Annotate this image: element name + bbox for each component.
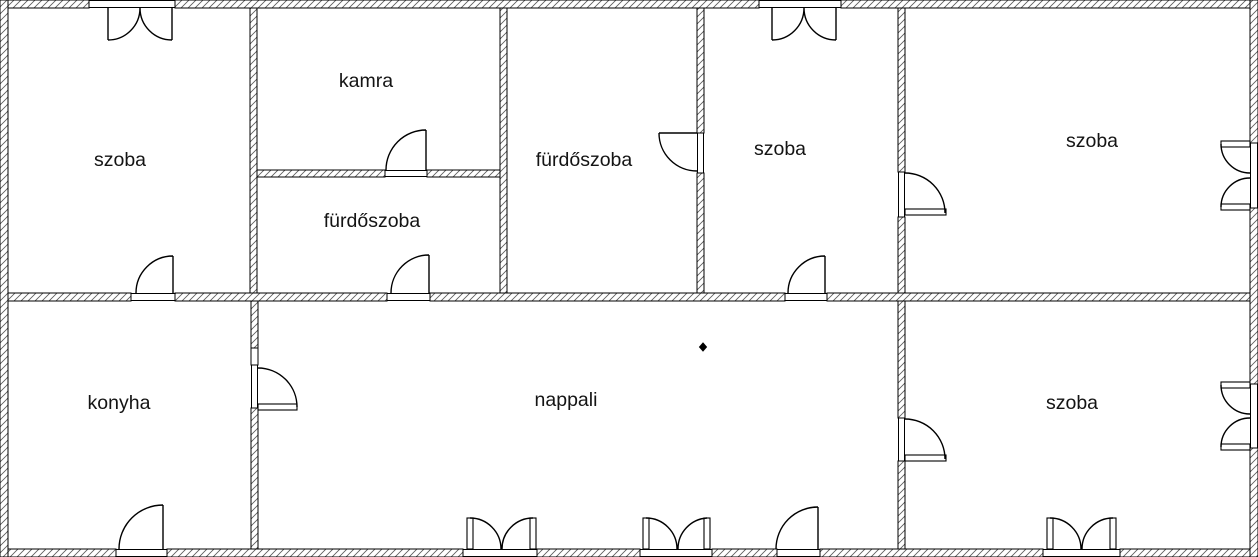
door-arc (258, 368, 297, 407)
wall-segment (0, 549, 116, 557)
room-label-nappali: nappali (535, 389, 598, 411)
door-leaf (258, 404, 297, 410)
threshold (785, 294, 827, 301)
threshold (698, 133, 704, 173)
window-leaf (704, 518, 710, 549)
threshold (777, 550, 820, 557)
door-szoba-top-right (905, 173, 946, 215)
door-szoba-top-middle (788, 256, 825, 293)
double-window-szoba-top-right (1221, 141, 1250, 210)
window-leaf (1221, 382, 1250, 388)
threshold (131, 294, 175, 301)
wall-segment (175, 0, 759, 8)
room-labels: szoba kamra fürdőszoba fürdőszoba szoba … (88, 70, 1119, 414)
threshold (759, 1, 841, 8)
threshold (252, 365, 258, 408)
room-label-szoba-top-left: szoba (94, 149, 146, 171)
window-leaf (1221, 444, 1250, 450)
door-leaf (905, 455, 946, 461)
threshold (640, 550, 712, 557)
wall-segment (537, 549, 640, 557)
door-konyha-nappali (258, 368, 297, 410)
wall-segment (898, 301, 905, 418)
wall-segment-plain (251, 348, 258, 365)
floor-plan-canvas: szoba kamra fürdőszoba fürdőszoba szoba … (0, 0, 1258, 557)
window-arcs (1221, 144, 1250, 207)
double-door-szoba-top-middle (772, 8, 836, 40)
threshold (899, 172, 905, 217)
door-nappali-exterior (776, 507, 818, 549)
door-leaf (1110, 518, 1116, 549)
room-label-szoba-top-middle: szoba (754, 138, 806, 160)
wall-segment (1250, 0, 1258, 143)
wall-segment (1250, 208, 1258, 384)
door-szoba-bottom-right (905, 419, 946, 461)
door-arc (905, 173, 945, 213)
double-door-szoba-bottom-right (1047, 518, 1116, 549)
wall-segment (250, 8, 257, 293)
window-arcs (646, 518, 707, 549)
door-furdoszoba-small (391, 255, 429, 293)
room-label-szoba-top-right: szoba (1066, 130, 1118, 152)
threshold (116, 550, 167, 557)
room-label-furdoszoba-small: fürdőszoba (324, 210, 421, 232)
window-leaf (467, 518, 473, 549)
exterior-walls (0, 0, 1258, 557)
threshold (1251, 384, 1258, 448)
doors-and-windows (108, 8, 1250, 549)
threshold (89, 1, 175, 8)
double-window-nappali-1 (467, 518, 536, 549)
window-arcs (470, 518, 533, 549)
threshold (1251, 143, 1258, 208)
window-arcs (1221, 385, 1250, 447)
interior-walls (8, 8, 1250, 549)
double-window-szoba-bottom-right (1221, 382, 1250, 450)
window-leaf (1221, 204, 1250, 210)
room-label-furdoszoba-main: fürdőszoba (536, 149, 633, 171)
wall-segment (257, 170, 385, 177)
wall-segment (427, 170, 500, 177)
wall-segment (697, 8, 704, 133)
wall-segment (898, 461, 905, 549)
window-leaf (643, 518, 649, 549)
door-furdoszoba-main (659, 133, 697, 171)
window-leaf (530, 518, 536, 549)
door-kamra (386, 130, 426, 170)
wall-segment (167, 549, 463, 557)
wall-segment (898, 8, 905, 172)
wall-segment (827, 293, 1250, 301)
wall-segment (0, 0, 8, 557)
door-leaf (905, 209, 946, 215)
wall-segment (1250, 448, 1258, 557)
room-label-konyha: konyha (88, 392, 151, 414)
threshold (385, 171, 427, 177)
wall-segment (0, 0, 89, 8)
wall-segment (697, 173, 704, 293)
wall-segment (251, 301, 258, 348)
wall-segment (8, 293, 131, 301)
wall-segment (712, 549, 777, 557)
window-leaf (1221, 141, 1250, 147)
room-label-kamra: kamra (339, 70, 393, 92)
double-door-szoba-top-left (108, 8, 172, 40)
threshold (1043, 550, 1120, 557)
wall-segment (820, 549, 1043, 557)
threshold (387, 294, 430, 301)
door-arcs (1050, 518, 1113, 549)
wall-segment (251, 408, 258, 549)
door-thresholds (89, 1, 1258, 557)
door-konyha-exterior (119, 505, 163, 549)
wall-segment (430, 293, 785, 301)
wall-segment (841, 0, 1258, 8)
wall-segment (898, 217, 905, 293)
floor-plan: szoba kamra fürdőszoba fürdőszoba szoba … (0, 0, 1258, 557)
double-window-nappali-2 (643, 518, 710, 549)
door-arc (905, 419, 945, 459)
threshold (463, 550, 537, 557)
door-szoba-top-left (136, 256, 173, 293)
wall-segment (175, 293, 387, 301)
wall-segment (1120, 549, 1258, 557)
threshold (899, 418, 905, 461)
wall-segment (500, 8, 507, 293)
room-label-szoba-bottom-right: szoba (1046, 392, 1098, 414)
door-leaf (1047, 518, 1053, 549)
nappali-diamond-marker (700, 343, 707, 351)
